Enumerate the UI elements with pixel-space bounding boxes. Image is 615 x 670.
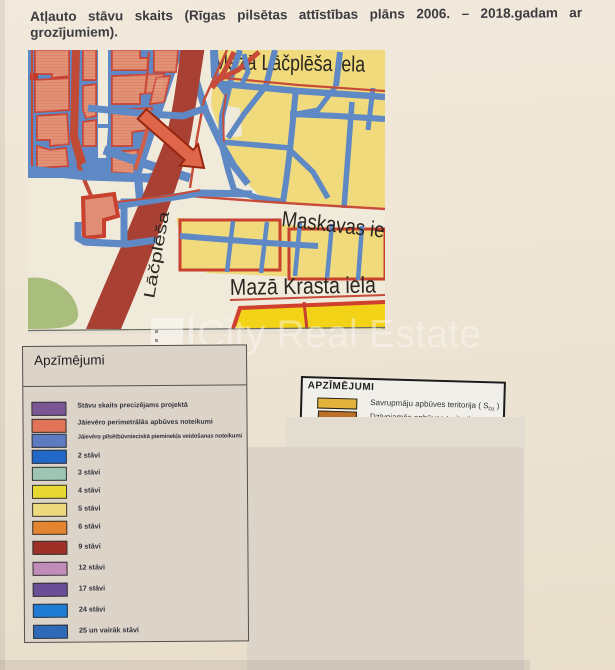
svg-text:Mazā Krasta iela: Mazā Krasta iela [230, 271, 377, 300]
